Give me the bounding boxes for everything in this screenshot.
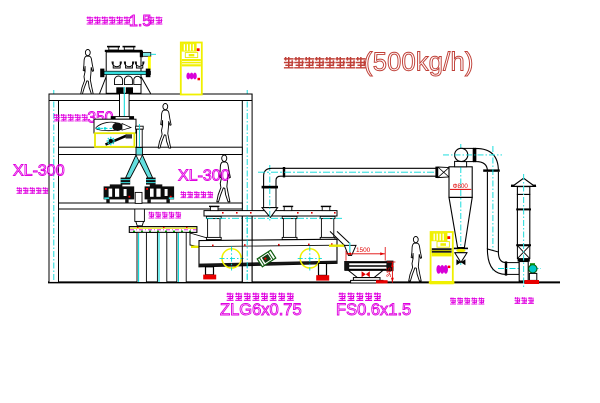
svg-text:XL-300: XL-300	[13, 163, 65, 180]
svg-text:1.5: 1.5	[129, 13, 151, 30]
svg-text:(500kg/h): (500kg/h)	[364, 49, 474, 77]
svg-text:ZLG6x0.75: ZLG6x0.75	[220, 301, 302, 319]
svg-text:1500: 1500	[356, 247, 371, 254]
svg-text:345: 345	[387, 267, 393, 278]
svg-text:FS0.6x1.5: FS0.6x1.5	[336, 301, 411, 319]
svg-text:XL-300: XL-300	[178, 168, 230, 185]
